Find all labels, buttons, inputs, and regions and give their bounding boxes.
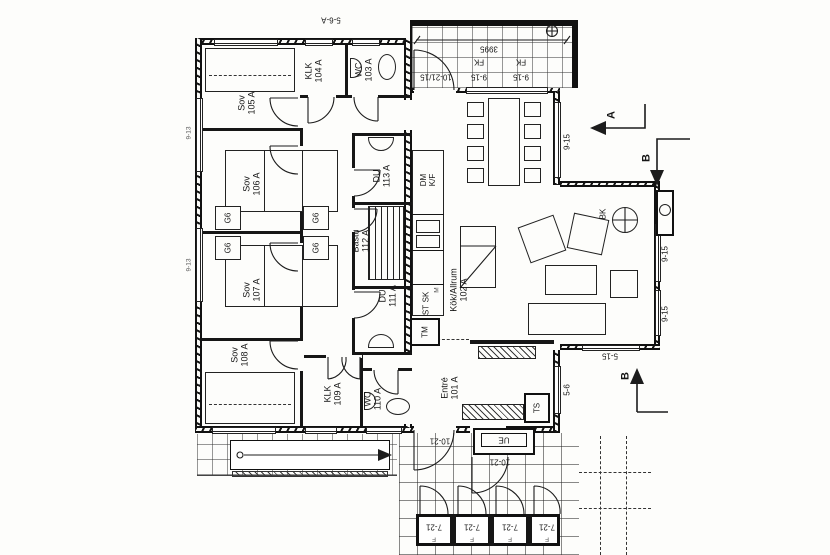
- dim-915-dining: 9-15: [562, 134, 571, 150]
- window-wc110-bottom: [366, 427, 402, 434]
- dim-56a-top: 5-6-A: [321, 16, 341, 25]
- room-label-kok-allrum: Kök/Allrum102 A: [449, 268, 470, 312]
- bed-divider: [264, 151, 265, 211]
- label-cabinet-st: ST: [421, 305, 430, 315]
- section-label-b-bottom: B: [620, 372, 633, 380]
- door-arc: [308, 97, 334, 123]
- window-dining: [466, 87, 548, 94]
- floor-plan: Sov105 A KLK104 A WC103 A Sov106 A Sov10…: [0, 0, 830, 555]
- dim-leaf-4: F: [545, 536, 549, 543]
- dining-chair: [467, 168, 484, 183]
- window-bump-bottom: [582, 345, 640, 351]
- door-gap-klk109: [326, 355, 362, 358]
- shower-du113: [368, 137, 394, 151]
- dining-table: [488, 98, 520, 186]
- door-arc: [354, 97, 378, 121]
- label-g6-3: G6: [311, 213, 320, 224]
- room-label-sov108: Sov108 A: [230, 343, 251, 366]
- room-label-wc110: WC110 A: [363, 388, 384, 410]
- deck-extension-dash-1: [600, 436, 601, 555]
- room-label-sov107: Sov107 A: [242, 278, 263, 301]
- window-wc103-top: [352, 39, 380, 46]
- door-gap-bastu: [352, 208, 355, 232]
- dim-913-left-2: 9-13: [185, 258, 192, 271]
- armchair-3: [610, 270, 638, 298]
- dim-915-deck-2: 9-15: [513, 73, 529, 82]
- room-label-bastu112: Bastu112 A: [351, 229, 372, 252]
- dim-721-unit-3: 7-21: [502, 523, 518, 532]
- dining-chair: [524, 124, 541, 139]
- dining-chair: [524, 146, 541, 161]
- label-outdoor-ue: UE: [498, 436, 509, 445]
- room-label-sov106: Sov106 A: [242, 172, 263, 195]
- dim-915-right-2: 9-15: [660, 306, 669, 322]
- label-stove-bk: BK: [598, 209, 607, 220]
- dim-721-unit-2: 7-21: [464, 523, 480, 532]
- coffee-table: [545, 265, 597, 295]
- dim-fk-2: FK: [516, 58, 526, 67]
- room-label-du111: DU111 A: [378, 285, 399, 307]
- room-label-klk104: KLK104 A: [304, 59, 325, 82]
- dim-leaf-2: F: [470, 536, 474, 543]
- section-label-a: A: [606, 111, 619, 119]
- kitchen-divider-2: [412, 250, 444, 251]
- label-g6-1: G6: [223, 213, 232, 224]
- dining-chair: [524, 102, 541, 117]
- door-arc: [342, 357, 360, 379]
- storage-unit-post-1: [450, 514, 456, 546]
- wall-entre-top: [470, 340, 554, 344]
- dim-913-left-1: 9-13: [185, 126, 192, 139]
- bed-sov108: [205, 372, 295, 424]
- door-gap-wc110: [372, 368, 398, 371]
- label-g6-4: G6: [311, 243, 320, 254]
- dim-leaf-1: F: [432, 536, 436, 543]
- wood-stove: [612, 207, 638, 233]
- label-drying-ts: TS: [532, 403, 541, 413]
- room-label-du113: DU113 A: [372, 165, 393, 187]
- window-klk109-bottom: [305, 427, 337, 434]
- label-g6-2: G6: [223, 243, 232, 254]
- window-entre-right: [554, 366, 561, 414]
- toilet-wc110: [386, 398, 410, 415]
- wall-sov107-sov108: [202, 338, 303, 341]
- section-a-arrow: [590, 121, 606, 135]
- dim-deck-length: 3995: [480, 45, 498, 54]
- wall-sov105-bottom: [202, 128, 303, 131]
- window-living-east-upper: [554, 102, 561, 178]
- window-sov105-top: [214, 39, 278, 46]
- dim-56-entre: 5-6: [562, 384, 571, 396]
- chimney-cap: [659, 204, 671, 216]
- section-b-top-line: [657, 139, 690, 170]
- bed-divider: [302, 151, 303, 211]
- bed-divider: [264, 246, 265, 306]
- door-gap-entrance: [414, 426, 456, 433]
- door-arc: [270, 341, 298, 369]
- deck-extension-dash-3: [579, 472, 651, 473]
- dim-515-bottom: 5-15: [602, 352, 618, 361]
- storage-unit-post-3: [526, 514, 532, 546]
- toilet-wc103: [378, 54, 396, 80]
- kitchen-divider-3: [412, 284, 444, 285]
- dining-chair: [524, 168, 541, 183]
- door-gap-sov108: [299, 341, 304, 371]
- kitchen-divider-1: [412, 214, 444, 215]
- section-label-b-top: B: [641, 154, 654, 162]
- room-label-entre: Entré101 A: [440, 376, 461, 399]
- dim-leaf-3: F: [508, 536, 512, 543]
- deck-extension-dash-2: [626, 436, 627, 555]
- dim-721-unit-1: 7-21: [426, 523, 442, 532]
- deck-extension-dash-4: [579, 508, 651, 509]
- bed-sov105: [205, 48, 295, 92]
- dining-chair: [467, 124, 484, 139]
- coat-bench-bottom: [462, 404, 524, 420]
- wall-klk104-wc103-divider: [345, 45, 348, 97]
- label-cabinet-sk: SK: [421, 292, 430, 303]
- window-left-2: [196, 228, 203, 302]
- dining-chair: [467, 146, 484, 161]
- room-label-sov105: Sov105 A: [237, 91, 258, 114]
- sauna-benches: [368, 206, 404, 280]
- wall-du113-top: [352, 133, 412, 136]
- label-micro: M: [433, 287, 440, 292]
- room-label-klk109: KLK109 A: [323, 382, 344, 405]
- ramp: [230, 440, 390, 470]
- sofa: [528, 303, 606, 335]
- window-sov108-bottom: [212, 427, 276, 434]
- door-gap-klk104: [308, 95, 336, 98]
- door-gap-sov105: [299, 98, 304, 128]
- dim-1021-door-2: 10-21: [490, 458, 510, 467]
- room-label-wc103: WC103 A: [354, 58, 375, 81]
- window-left-1: [196, 98, 203, 172]
- wall-du113-bastu: [352, 202, 412, 205]
- dim-915-right-1: 9-15: [660, 246, 669, 262]
- dim-fk-1: FK: [474, 58, 484, 67]
- label-dm-kf: DMK/F: [419, 174, 437, 186]
- coat-bench-top: [478, 346, 536, 359]
- door-gap-du111: [352, 290, 355, 318]
- door-arc: [328, 357, 346, 379]
- ramp-edge-hatch: [232, 471, 388, 477]
- shower-du111: [368, 334, 394, 348]
- dim-1021-door-1: 10-21: [430, 437, 450, 446]
- kitchen-sink-1: [416, 220, 440, 233]
- dim-915-deck-1: 9-15: [471, 73, 487, 82]
- kitchen-sink-2: [416, 235, 440, 248]
- armchair-1: [518, 215, 567, 264]
- label-washer-tm: TM: [420, 326, 429, 338]
- door-gap-du113: [352, 168, 355, 196]
- wall-bump-top: [560, 181, 660, 187]
- wall-sov106-sov107: [202, 231, 303, 234]
- door-arc: [270, 98, 298, 126]
- dim-deck-door: 10-21/15: [420, 73, 452, 82]
- storage-unit-post-2: [488, 514, 494, 546]
- window-klk104-top: [305, 39, 333, 46]
- dim-721-unit-4: 7-21: [539, 523, 555, 532]
- door-gap-wc103: [352, 95, 378, 98]
- door-gap-hall-living: [404, 100, 412, 130]
- door-arc: [354, 292, 380, 318]
- section-b-bottom-line: [637, 384, 668, 412]
- dining-chair: [467, 102, 484, 117]
